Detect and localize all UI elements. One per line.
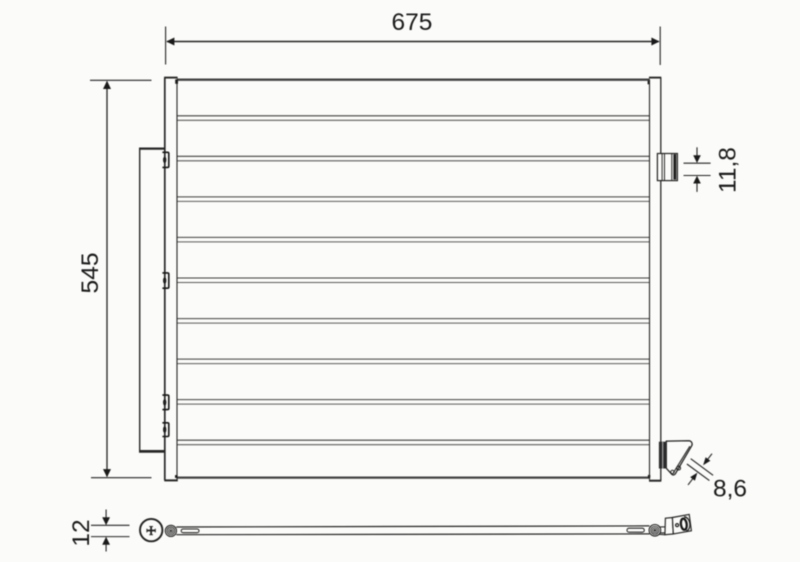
svg-text:8,6: 8,6 (713, 476, 747, 503)
svg-text:12: 12 (68, 519, 95, 546)
svg-text:11,8: 11,8 (715, 147, 742, 193)
svg-text:675: 675 (392, 9, 433, 36)
svg-text:545: 545 (77, 253, 104, 294)
